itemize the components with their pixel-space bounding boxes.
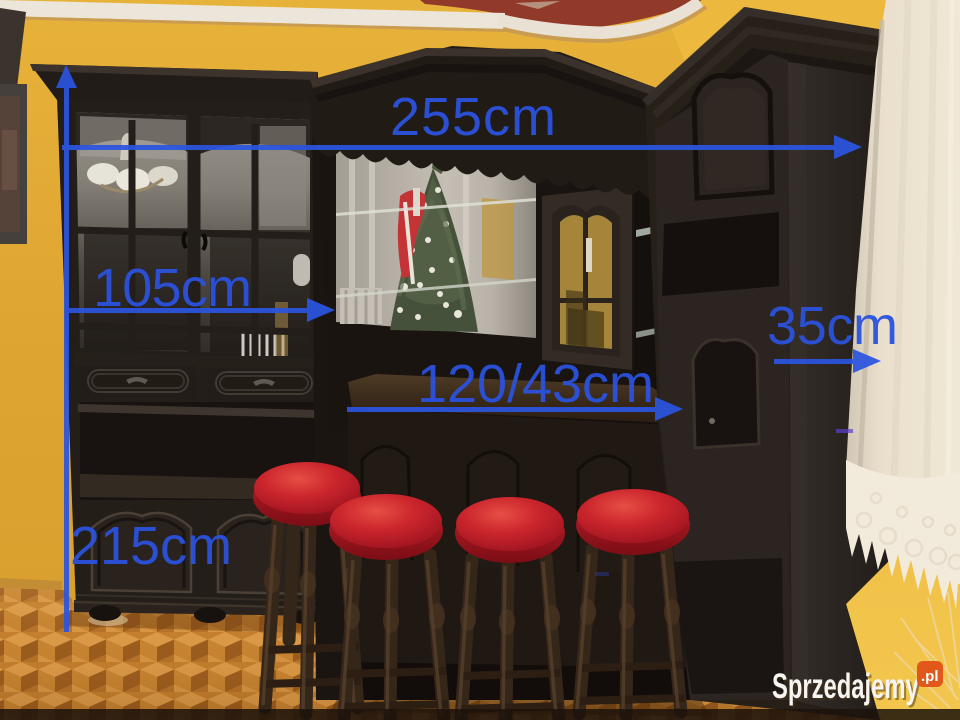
- svg-text:255cm: 255cm: [390, 87, 556, 147]
- svg-text:35cm: 35cm: [767, 296, 898, 356]
- svg-text:215cm: 215cm: [70, 516, 232, 576]
- svg-text:Sprzedajemy: Sprzedajemy: [772, 668, 919, 707]
- svg-text:105cm: 105cm: [93, 258, 252, 318]
- svg-text:120/43cm: 120/43cm: [417, 354, 654, 414]
- svg-text:.pl: .pl: [921, 668, 939, 685]
